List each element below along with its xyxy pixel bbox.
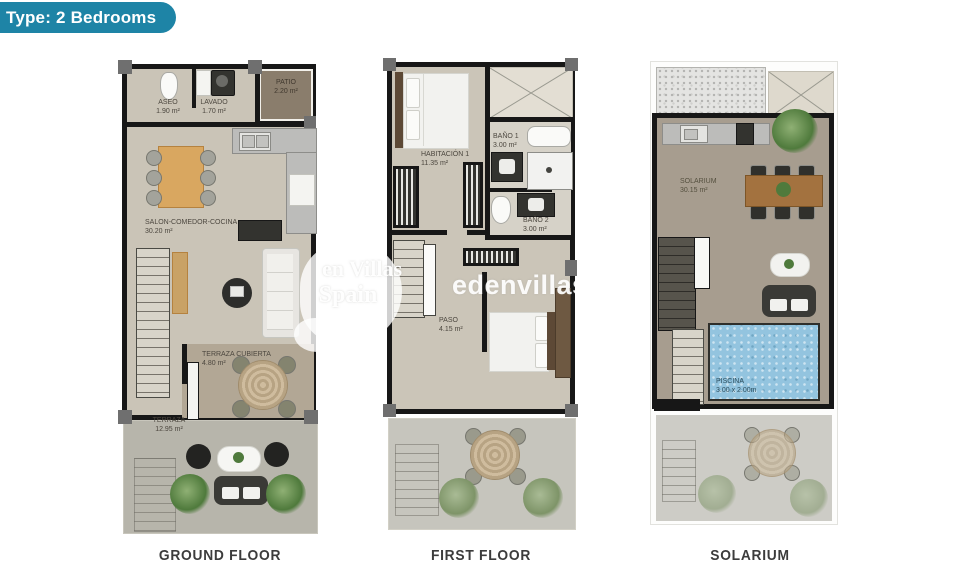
outdoor-sofa bbox=[762, 285, 816, 317]
chair bbox=[200, 170, 216, 186]
chair bbox=[750, 205, 767, 220]
stairs-outline bbox=[662, 440, 696, 502]
chair bbox=[200, 190, 216, 206]
pillar bbox=[304, 410, 318, 424]
plant bbox=[266, 474, 306, 514]
bathtub bbox=[527, 126, 571, 147]
pillar bbox=[383, 404, 396, 417]
table-plant bbox=[776, 182, 791, 197]
plant bbox=[698, 475, 736, 513]
chair bbox=[146, 190, 162, 206]
caption-ground-floor: GROUND FLOOR bbox=[128, 547, 312, 564]
toilet bbox=[160, 72, 178, 100]
room-label-habitacion1: HABITACIÓN 111.35 m² bbox=[421, 150, 491, 168]
coffee-table-tray bbox=[230, 286, 244, 297]
floorplan-sheet: Type: 2 Bedrooms bbox=[0, 0, 955, 575]
chair bbox=[200, 150, 216, 166]
type-badge: Type: 2 Bedrooms bbox=[0, 2, 176, 33]
pillar bbox=[383, 58, 396, 71]
watermark-logo-blob-tail bbox=[294, 318, 338, 352]
plant bbox=[439, 478, 479, 518]
caption-solarium: SOLARIUM bbox=[658, 547, 842, 564]
floor-plan-solarium: PISCINA3.00 x 2.00m SOLARIUM30.15 m² bbox=[650, 55, 840, 535]
room-label-terraza: TERRAZA12.95 m² bbox=[142, 416, 196, 434]
plant bbox=[523, 478, 563, 518]
outdoor-sink bbox=[680, 125, 708, 143]
watermark-logo-line2: Spain bbox=[288, 282, 408, 309]
wall bbox=[389, 230, 447, 235]
fridge bbox=[289, 174, 315, 206]
duvet-fold bbox=[423, 74, 424, 146]
room-label-piscina: PISCINA3.00 x 2.00m bbox=[716, 377, 786, 395]
pillar bbox=[565, 404, 578, 417]
type-badge-label: Type: 2 Bedrooms bbox=[6, 8, 156, 27]
chair bbox=[798, 205, 815, 220]
plant bbox=[772, 109, 818, 153]
pillar bbox=[304, 116, 316, 128]
console-table bbox=[172, 252, 188, 314]
laundry-sink bbox=[196, 70, 211, 96]
bed-headboard bbox=[547, 312, 555, 370]
wall bbox=[255, 66, 260, 127]
toilet bbox=[491, 196, 511, 224]
pillow bbox=[406, 78, 420, 108]
room-label-lavado: LAVADO1.70 m² bbox=[190, 98, 238, 116]
wardrobe bbox=[463, 162, 483, 228]
stair-landing bbox=[694, 237, 710, 289]
wardrobe bbox=[393, 166, 419, 228]
room-label-bano1: BAÑO 13.00 m² bbox=[493, 132, 533, 150]
outdoor-chair bbox=[186, 444, 211, 469]
room-label-aseo: ASEO1.90 m² bbox=[146, 98, 190, 116]
bbq-module bbox=[736, 123, 754, 145]
chair bbox=[278, 400, 296, 418]
pillar bbox=[565, 58, 578, 71]
pillow bbox=[406, 110, 420, 140]
table-plant bbox=[784, 259, 794, 269]
dining-table bbox=[158, 146, 204, 208]
void-cross-icon bbox=[490, 68, 572, 118]
chair bbox=[774, 205, 791, 220]
room-label-terraza-cubierta: TERRAZA CUBIERTA4.80 m² bbox=[202, 350, 282, 368]
bed-headboard bbox=[395, 72, 403, 148]
pillar bbox=[248, 60, 262, 74]
round-wicker-table bbox=[748, 429, 796, 477]
kitchen-sink bbox=[239, 132, 271, 151]
wall bbox=[654, 399, 700, 411]
room-label-solarium: SOLARIUM30.15 m² bbox=[680, 177, 740, 195]
room-label-paso: PASO4.15 m² bbox=[439, 316, 479, 334]
caption-first-floor: FIRST FLOOR bbox=[393, 547, 570, 564]
stairs-outline bbox=[395, 444, 439, 516]
pillar bbox=[118, 60, 132, 74]
shower-drain bbox=[546, 167, 552, 173]
bathroom-vanity bbox=[517, 193, 555, 217]
pillar bbox=[118, 410, 132, 424]
plant bbox=[170, 474, 210, 514]
wall bbox=[485, 117, 573, 122]
wall bbox=[124, 122, 260, 127]
washing-machine-door bbox=[216, 75, 228, 87]
room-label-salon: SALON-COMEDOR-COCINA30.20 m² bbox=[145, 218, 255, 236]
chair bbox=[146, 150, 162, 166]
staircase-lower bbox=[672, 329, 704, 405]
void-area bbox=[489, 67, 573, 119]
watermark-site-text: edenvillasspain bbox=[452, 270, 575, 304]
room-label-bano2: BAÑO 23.00 m² bbox=[523, 216, 563, 234]
round-wicker-table bbox=[470, 430, 520, 480]
staircase bbox=[136, 248, 170, 398]
bathroom-vanity bbox=[491, 152, 523, 182]
room-label-patio: PATIO2.20 m² bbox=[260, 78, 312, 96]
outdoor-sofa bbox=[214, 476, 268, 505]
chair bbox=[146, 170, 162, 186]
table-plant bbox=[233, 452, 244, 463]
watermark-logo-line1: en Villas bbox=[296, 256, 428, 282]
wall bbox=[485, 235, 573, 240]
wall-white bbox=[187, 362, 199, 420]
outdoor-chair bbox=[264, 442, 289, 467]
wall bbox=[467, 230, 490, 235]
plant bbox=[790, 479, 828, 517]
staircase bbox=[658, 237, 696, 331]
closet-rack bbox=[463, 248, 519, 266]
